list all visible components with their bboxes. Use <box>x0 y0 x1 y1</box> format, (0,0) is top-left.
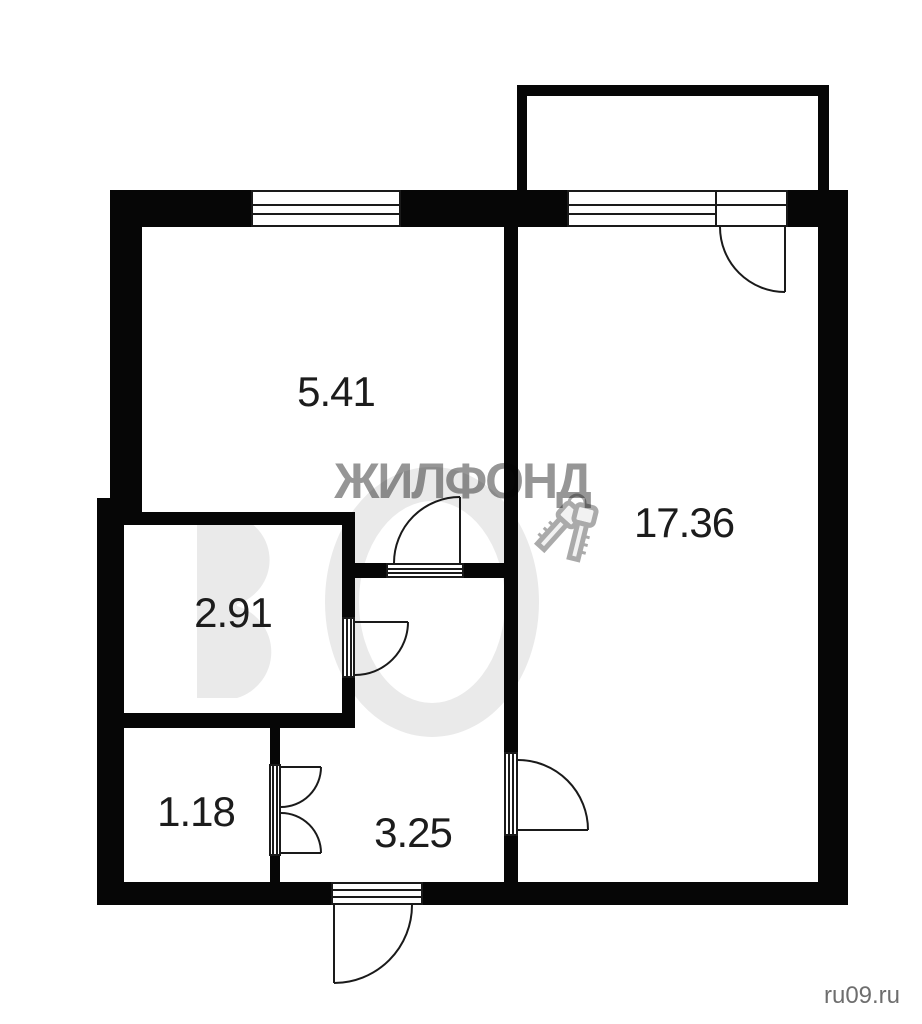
area-label-room-5-41: 5.41 <box>297 368 375 416</box>
window-room-5-41 <box>252 191 400 226</box>
balcony <box>517 85 829 192</box>
area-label-bathroom-1-18: 1.18 <box>157 788 235 836</box>
door-storage-2-91 <box>343 618 408 677</box>
brand-watermark-text: ЖИЛФОНД <box>334 452 590 510</box>
floor-plan-drawing <box>0 0 922 1024</box>
area-label-hallway-3-25: 3.25 <box>374 809 452 857</box>
balcony-door <box>716 191 787 292</box>
window-room-17-36 <box>568 191 716 226</box>
area-label-storage-2-91: 2.91 <box>194 589 272 637</box>
floor-plan-page: 5.41 17.36 2.91 1.18 3.25 ЖИЛФОНД ru09.r… <box>0 0 922 1024</box>
area-label-room-17-36: 17.36 <box>634 499 734 547</box>
door-room-17-36 <box>505 753 588 835</box>
door-bathroom-1-18 <box>270 765 321 855</box>
site-watermark: ru09.ru <box>824 982 900 1010</box>
entrance-door <box>332 883 422 983</box>
